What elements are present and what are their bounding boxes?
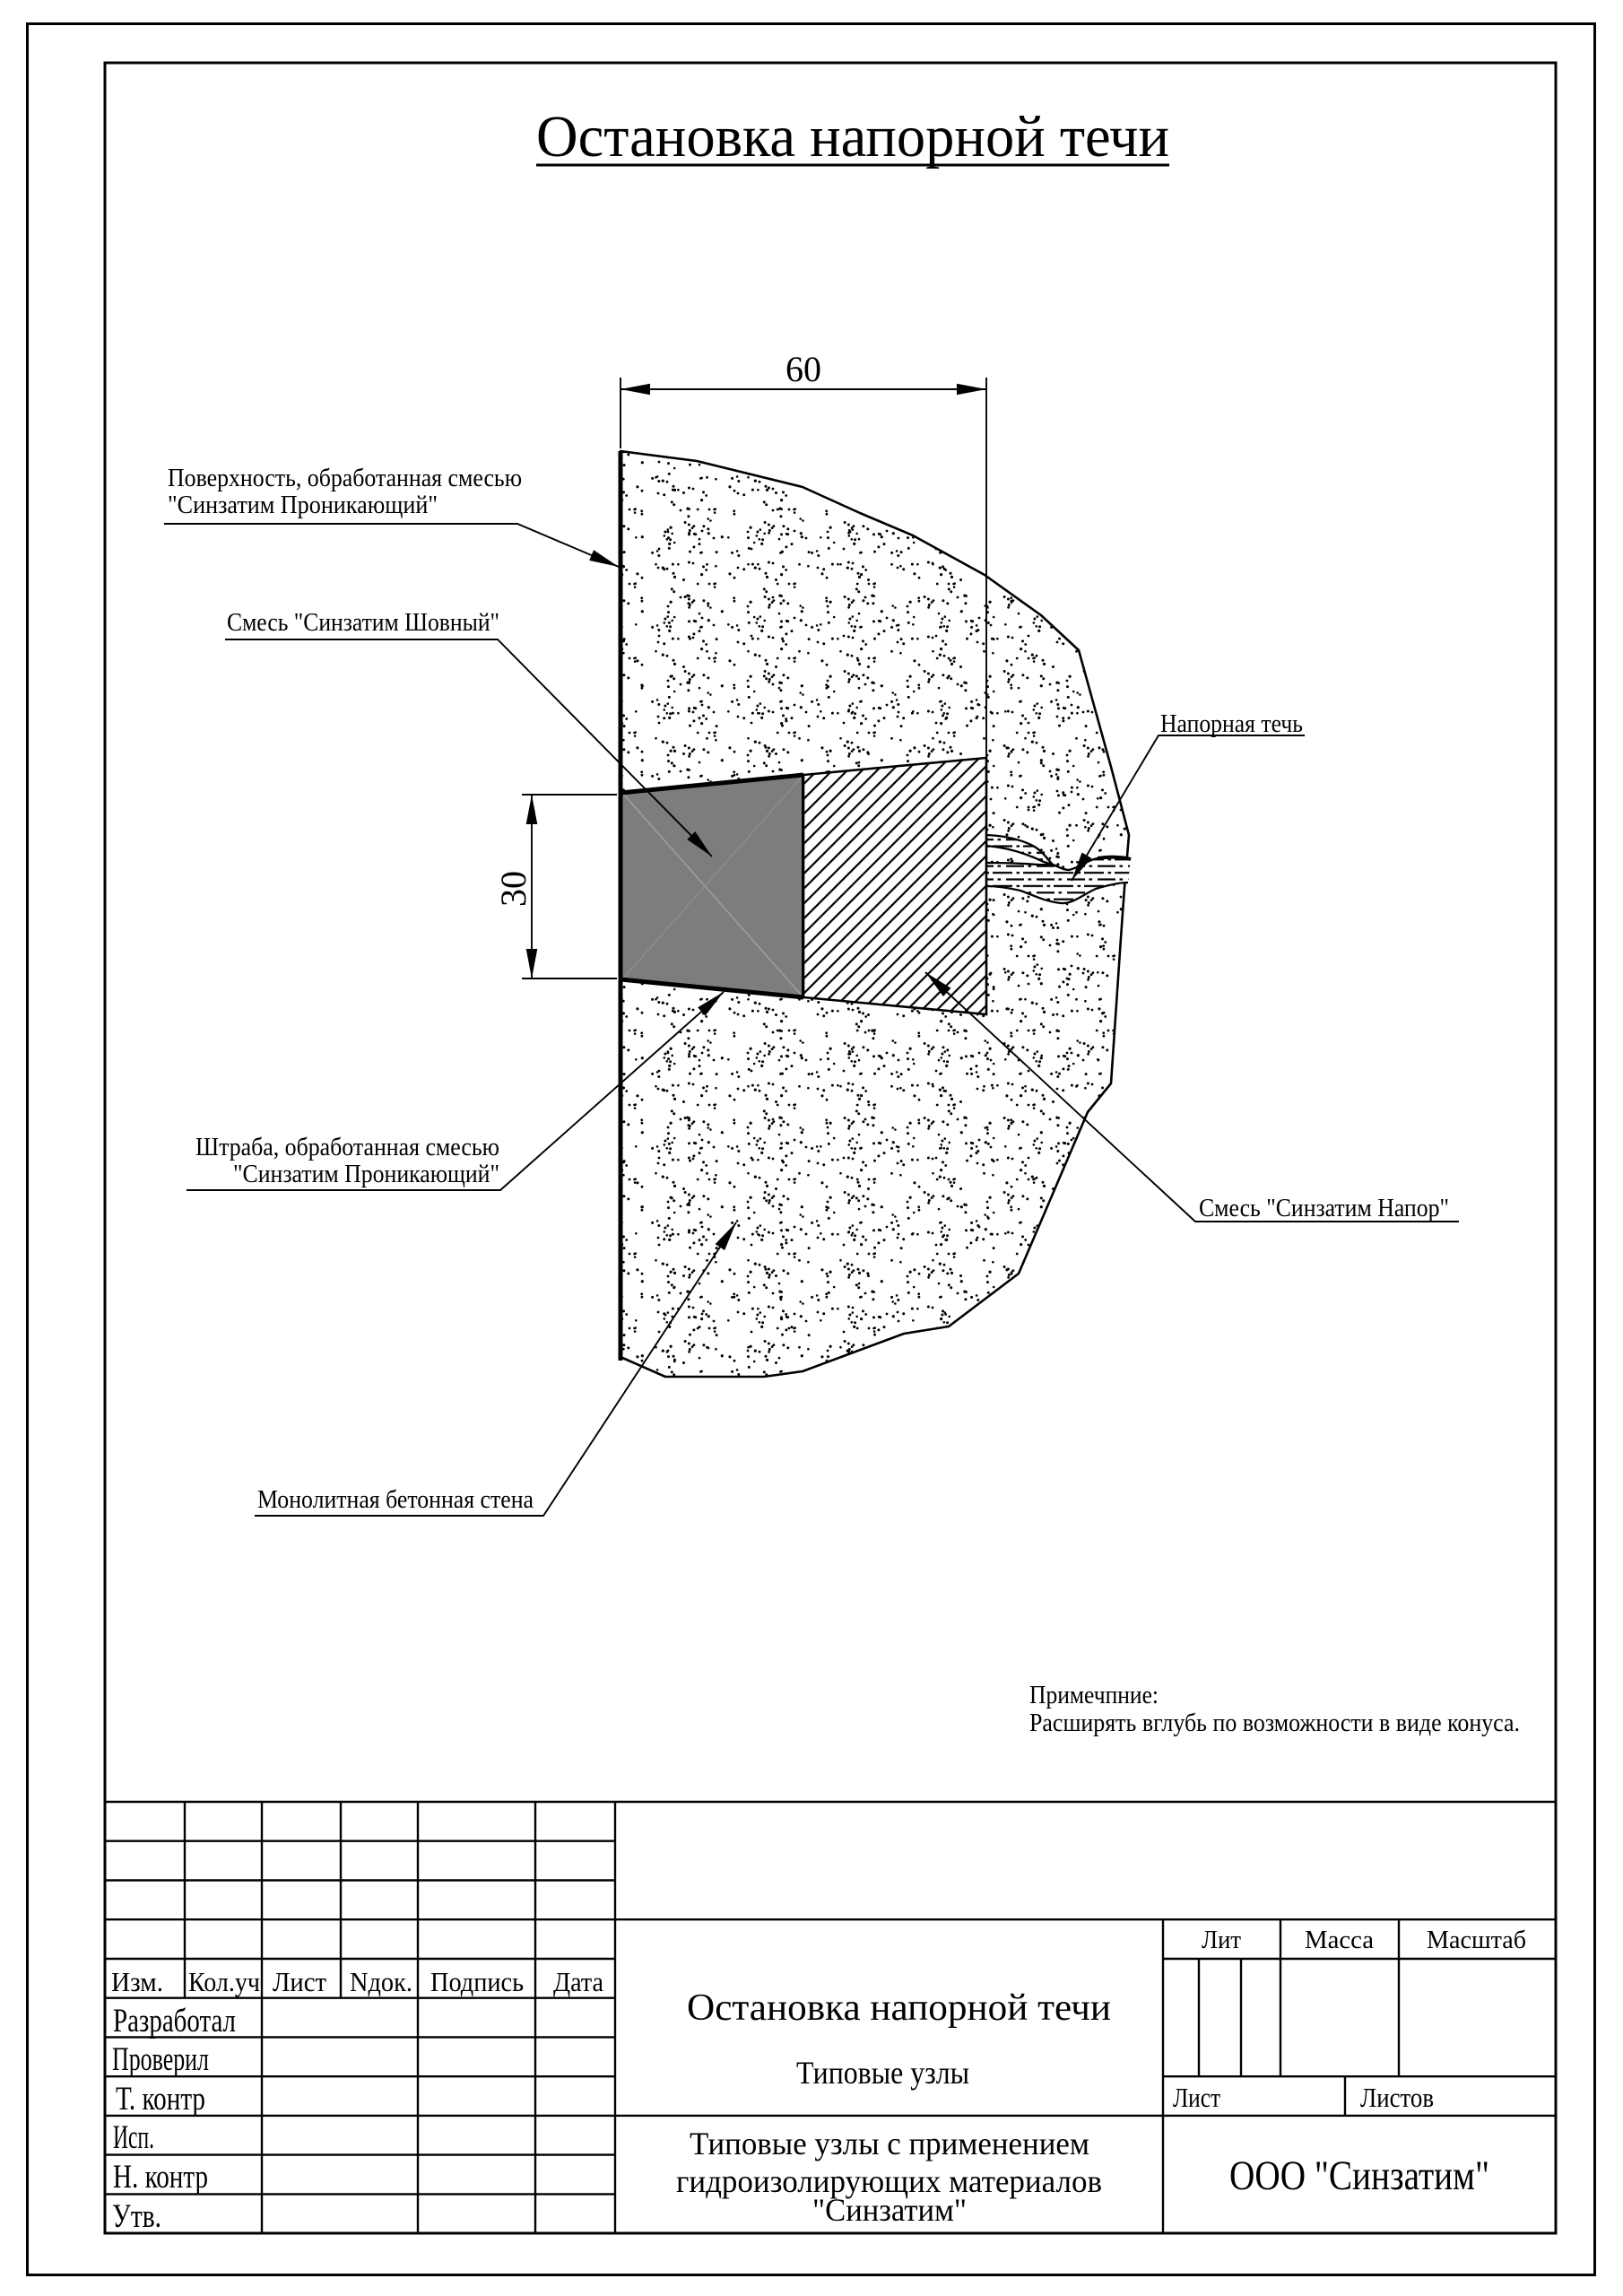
svg-text:Типовые узлы с применением: Типовые узлы с применением <box>690 2126 1089 2161</box>
svg-text:Остановка напорной течи: Остановка напорной течи <box>536 104 1169 170</box>
svg-text:Поверхность, обработанная смес: Поверхность, обработанная смесью <box>168 465 522 492</box>
svg-text:Лист: Лист <box>1173 2082 1220 2113</box>
svg-text:Масштаб: Масштаб <box>1427 1926 1526 1954</box>
svg-text:Кол.уч: Кол.уч <box>188 1966 260 1997</box>
svg-text:Nдок.: Nдок. <box>350 1966 412 1997</box>
svg-text:"Синзатим Проникающий": "Синзатим Проникающий" <box>233 1161 499 1188</box>
svg-text:ООО "Синзатим": ООО "Синзатим" <box>1229 2152 1489 2199</box>
svg-text:60: 60 <box>785 349 821 389</box>
svg-text:30: 30 <box>493 871 534 907</box>
svg-text:Утв.: Утв. <box>112 2198 161 2235</box>
svg-text:Исп.: Исп. <box>113 2119 154 2156</box>
svg-text:Разработал: Разработал <box>113 2003 236 2039</box>
svg-text:Напорная течь: Напорная течь <box>1160 710 1303 738</box>
svg-text:Н. контр: Н. контр <box>113 2159 208 2196</box>
svg-text:Листов: Листов <box>1360 2082 1434 2113</box>
svg-text:Т. контр: Т. контр <box>116 2081 205 2118</box>
svg-text:"Синзатим": "Синзатим" <box>812 2192 967 2228</box>
svg-text:Примечпние:: Примечпние: <box>1029 1681 1159 1709</box>
svg-text:Расширять вглубь по возможност: Расширять вглубь по возможности в виде к… <box>1029 1709 1520 1737</box>
svg-text:Дата: Дата <box>553 1966 603 1997</box>
svg-text:Штраба, обработанная смесью: Штраба, обработанная смесью <box>195 1134 499 1161</box>
svg-text:Лист: Лист <box>273 1966 326 1997</box>
svg-text:"Синзатим Проникающий": "Синзатим Проникающий" <box>168 491 438 519</box>
svg-text:Изм.: Изм. <box>111 1966 163 1997</box>
svg-text:Смесь "Синзатим Шовный": Смесь "Синзатим Шовный" <box>227 609 499 637</box>
svg-text:Масса: Масса <box>1305 1926 1374 1954</box>
svg-text:Смесь "Синзатим Напор": Смесь "Синзатим Напор" <box>1199 1195 1449 1222</box>
svg-text:Подпись: Подпись <box>430 1966 524 1997</box>
svg-text:Остановка напорной течи: Остановка напорной течи <box>687 1987 1111 2029</box>
svg-text:Лит: Лит <box>1202 1926 1241 1954</box>
svg-text:Проверил: Проверил <box>112 2041 209 2078</box>
svg-text:Типовые узлы: Типовые узлы <box>796 2055 969 2091</box>
svg-text:Монолитная бетонная стена: Монолитная бетонная стена <box>257 1486 534 1514</box>
